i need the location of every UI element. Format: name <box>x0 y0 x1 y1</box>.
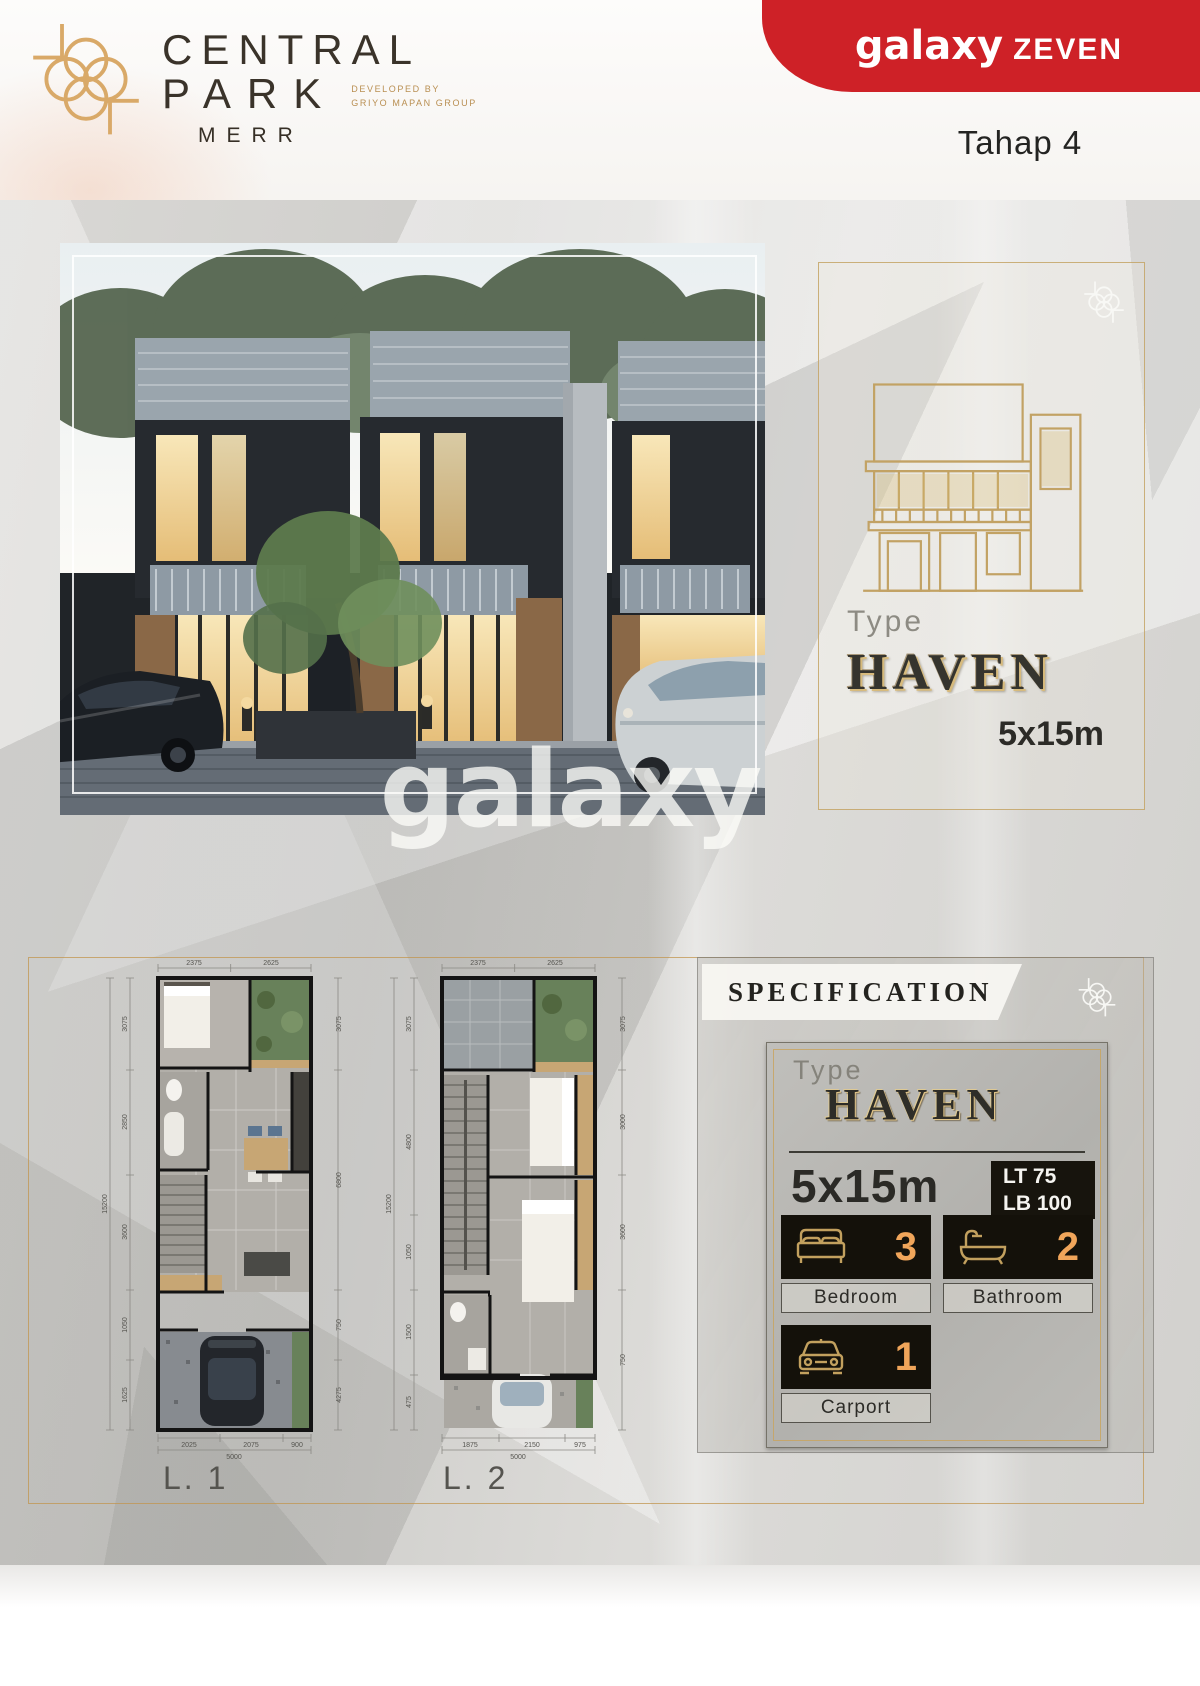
spec-land-building-area: LT 75 LB 100 <box>991 1161 1095 1219</box>
dim-label: 1050 <box>122 1317 129 1333</box>
flower-ornament-icon <box>1075 974 1119 1026</box>
dim-label: 5000 <box>226 1454 242 1460</box>
plan-level1-label: L. 1 <box>163 1460 228 1497</box>
dim-label: 1625 <box>122 1387 129 1403</box>
bed-icon <box>795 1227 847 1267</box>
dim-label: 4275 <box>336 1387 343 1403</box>
bathroom-count: 2 <box>1057 1225 1079 1270</box>
dim-label: 2625 <box>547 960 563 967</box>
phase-label: Tahap 4 <box>880 124 1160 162</box>
dim-label: 2025 <box>181 1442 197 1449</box>
specification-card: Type HAVEN 5x15m LT 75 LB 100 3 <box>766 1042 1108 1448</box>
type-label: Type <box>847 605 924 639</box>
carport-label: Carport <box>781 1393 931 1423</box>
type-panel: Type HAVEN 5x15m <box>818 262 1145 810</box>
dim-label: 2625 <box>263 960 279 967</box>
bottom-white-band <box>0 1565 1200 1686</box>
dim-label: 1500 <box>406 1324 413 1340</box>
flower-ornament-icon <box>26 12 146 162</box>
bedroom-count: 3 <box>895 1225 917 1270</box>
dim-label: 2075 <box>243 1442 259 1449</box>
developer-name: GRIYO MAPAN GROUP <box>351 98 477 108</box>
dim-label: 15200 <box>102 1194 109 1214</box>
specification-title: SPECIFICATION <box>728 977 993 1008</box>
spec-lt: LT 75 <box>1003 1163 1095 1190</box>
logo-sub-merr: MERR <box>198 124 477 148</box>
dim-label: 3075 <box>620 1016 627 1032</box>
dim-label: 750 <box>336 1319 343 1331</box>
logo-wordmark: CENTRAL PARK DEVELOPED BY GRIYO MAPAN GR… <box>162 28 477 148</box>
bathtub-icon <box>957 1227 1009 1267</box>
bedroom-label: Bedroom <box>781 1283 931 1313</box>
car-icon <box>795 1337 847 1377</box>
dim-label: 900 <box>291 1442 303 1449</box>
plan-level2-label: L. 2 <box>443 1460 508 1497</box>
bedroom-feature-tile: 3 <box>781 1215 931 1279</box>
flower-ornament-icon <box>1080 277 1128 333</box>
galaxy-watermark: galaxy <box>330 728 810 851</box>
carport-count: 1 <box>895 1335 917 1380</box>
logo-line-park: PARK <box>162 72 337 116</box>
brochure-page: CENTRAL PARK DEVELOPED BY GRIYO MAPAN GR… <box>0 0 1200 1686</box>
dim-label: 1050 <box>406 1244 413 1260</box>
logo-line-central: CENTRAL <box>162 28 477 72</box>
dim-label: 2150 <box>524 1442 540 1449</box>
brand-zeven: ZEVEN <box>1013 33 1123 67</box>
spec-lb: LB 100 <box>1003 1190 1095 1217</box>
carport-feature-tile: 1 <box>781 1325 931 1389</box>
dim-label: 1875 <box>462 1442 478 1449</box>
dim-label: 3000 <box>620 1114 627 1130</box>
bathroom-label: Bathroom <box>943 1283 1093 1313</box>
dim-label: 4800 <box>406 1134 413 1150</box>
dim-label: 5000 <box>510 1454 526 1460</box>
floor-plan-level2: 2375 2625 15200 3075 4800 1050 1500 475 … <box>380 960 650 1460</box>
developer-credit: DEVELOPED BY GRIYO MAPAN GROUP <box>351 83 477 110</box>
floor-plan-level1: 2375 2625 15200 3075 2850 3600 1050 1625… <box>96 960 366 1460</box>
developed-by-label: DEVELOPED BY <box>351 84 440 94</box>
dim-label: 3600 <box>620 1224 627 1240</box>
dim-label: 3600 <box>122 1224 129 1240</box>
house-unit-center <box>360 331 570 748</box>
brand-galaxy: galaxy <box>855 23 1003 69</box>
dim-label: 2375 <box>470 960 486 967</box>
dim-label: 475 <box>406 1396 413 1408</box>
dim-label: 3075 <box>122 1016 129 1032</box>
divider <box>789 1151 1085 1153</box>
plan2-rooms <box>444 980 593 1428</box>
dim-label: 3075 <box>406 1016 413 1032</box>
house-facade-line-art <box>845 379 1115 599</box>
specification-panel: SPECIFICATION Type HAVEN 5x15m LT 75 LB … <box>697 957 1154 1453</box>
spec-size: 5x15m <box>791 1159 939 1213</box>
central-park-logo: CENTRAL PARK DEVELOPED BY GRIYO MAPAN GR… <box>26 12 477 162</box>
dim-label: 6800 <box>336 1172 343 1188</box>
plan1-rooms <box>160 980 309 1428</box>
dim-label: 750 <box>620 1354 627 1366</box>
type-name-haven: HAVEN <box>847 643 1053 702</box>
dim-label: 975 <box>574 1442 586 1449</box>
dim-label: 2375 <box>186 960 202 967</box>
dim-label: 3075 <box>336 1016 343 1032</box>
type-size: 5x15m <box>998 715 1104 754</box>
dim-label: 15200 <box>386 1194 393 1214</box>
dim-label: 2850 <box>122 1114 129 1130</box>
top-band: CENTRAL PARK DEVELOPED BY GRIYO MAPAN GR… <box>0 0 1200 200</box>
galaxy-zeven-banner: galaxy ZEVEN <box>762 0 1200 92</box>
bathroom-feature-tile: 2 <box>943 1215 1093 1279</box>
spec-type-name: HAVEN <box>825 1079 1003 1130</box>
specification-header: SPECIFICATION <box>702 964 1022 1020</box>
